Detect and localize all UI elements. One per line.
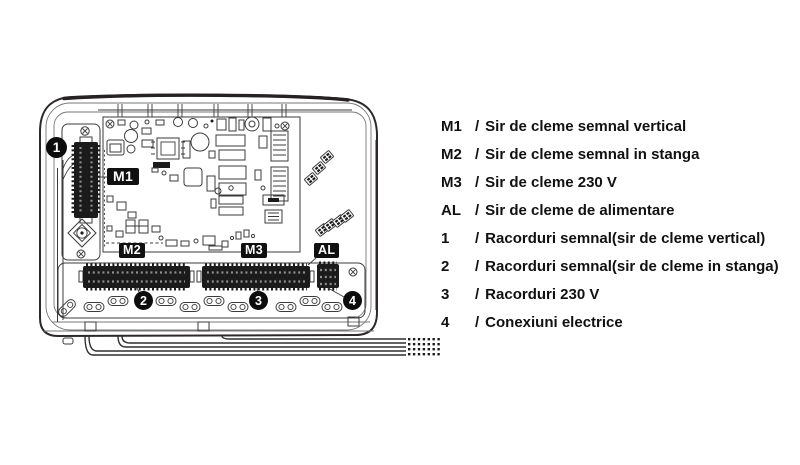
legend-item-m3: M3 / Sir de cleme 230 V bbox=[441, 168, 797, 196]
diagonal-connectors-upper bbox=[304, 150, 334, 185]
legend-separator: / bbox=[475, 286, 479, 303]
callout-2: 2 bbox=[134, 291, 153, 310]
label-m3: M3 bbox=[241, 243, 267, 258]
legend-item-1: 1 / Racorduri semnal(sir de cleme vertic… bbox=[441, 224, 797, 252]
legend-item-2: 2 / Racorduri semnal(sir de cleme in sta… bbox=[441, 252, 797, 280]
legend-item-m1: M1 / Sir de cleme semnal vertical bbox=[441, 112, 797, 140]
legend-item-m2: M2 / Sir de cleme semnal in stanga bbox=[441, 140, 797, 168]
legend-separator: / bbox=[475, 314, 479, 331]
legend-key: 3 bbox=[441, 286, 475, 303]
legend-key: AL bbox=[441, 202, 475, 219]
legend-key: M1 bbox=[441, 118, 475, 135]
terminal-strip-m2 bbox=[83, 265, 190, 296]
legend-text: Conexiuni electrice bbox=[485, 314, 623, 331]
legend-key: M2 bbox=[441, 146, 475, 163]
legend-key: M3 bbox=[441, 174, 475, 191]
legend-text: Racorduri 230 V bbox=[485, 286, 599, 303]
terminal-strip-m1 bbox=[73, 137, 107, 223]
legend-separator: / bbox=[475, 258, 479, 275]
callout-4: 4 bbox=[343, 291, 362, 310]
screw-icon bbox=[77, 250, 85, 258]
legend-separator: / bbox=[475, 174, 479, 191]
legend-item-al: AL / Sir de cleme de alimentare bbox=[441, 196, 797, 224]
cable-end-dots bbox=[408, 338, 440, 355]
screw-icon bbox=[81, 127, 89, 135]
cable-clamps bbox=[57, 297, 342, 319]
legend: M1 / Sir de cleme semnal vertical M2 / S… bbox=[441, 112, 797, 336]
legend-text: Sir de cleme semnal in stanga bbox=[485, 146, 699, 163]
legend-text: Racorduri semnal(sir de cleme vertical) bbox=[485, 230, 765, 247]
legend-text: Racorduri semnal(sir de cleme in stanga) bbox=[485, 258, 778, 275]
enclosure-line-art bbox=[0, 0, 445, 465]
callout-3: 3 bbox=[249, 291, 268, 310]
legend-separator: / bbox=[475, 202, 479, 219]
legend-key: 2 bbox=[441, 258, 475, 275]
legend-separator: / bbox=[475, 118, 479, 135]
legend-key: 4 bbox=[441, 314, 475, 331]
label-m2: M2 bbox=[119, 243, 145, 258]
page: M1 M2 M3 AL 1 2 3 4 M1 / Sir de cleme se… bbox=[0, 0, 800, 465]
legend-separator: / bbox=[475, 230, 479, 247]
label-m1: M1 bbox=[107, 168, 139, 185]
label-al: AL bbox=[314, 243, 339, 258]
legend-key: 1 bbox=[441, 230, 475, 247]
legend-item-4: 4 / Conexiuni electrice bbox=[441, 308, 797, 336]
screw-icon bbox=[349, 268, 357, 276]
legend-text: Sir de cleme 230 V bbox=[485, 174, 617, 191]
legend-separator: / bbox=[475, 146, 479, 163]
legend-text: Sir de cleme semnal vertical bbox=[485, 118, 686, 135]
legend-text: Sir de cleme de alimentare bbox=[485, 202, 674, 219]
control-unit-diagram: M1 M2 M3 AL 1 2 3 4 bbox=[0, 0, 445, 465]
legend-item-3: 3 / Racorduri 230 V bbox=[441, 280, 797, 308]
diagonal-connectors-lower bbox=[315, 209, 354, 236]
callout-1: 1 bbox=[46, 137, 67, 158]
exit-cables bbox=[85, 336, 406, 355]
